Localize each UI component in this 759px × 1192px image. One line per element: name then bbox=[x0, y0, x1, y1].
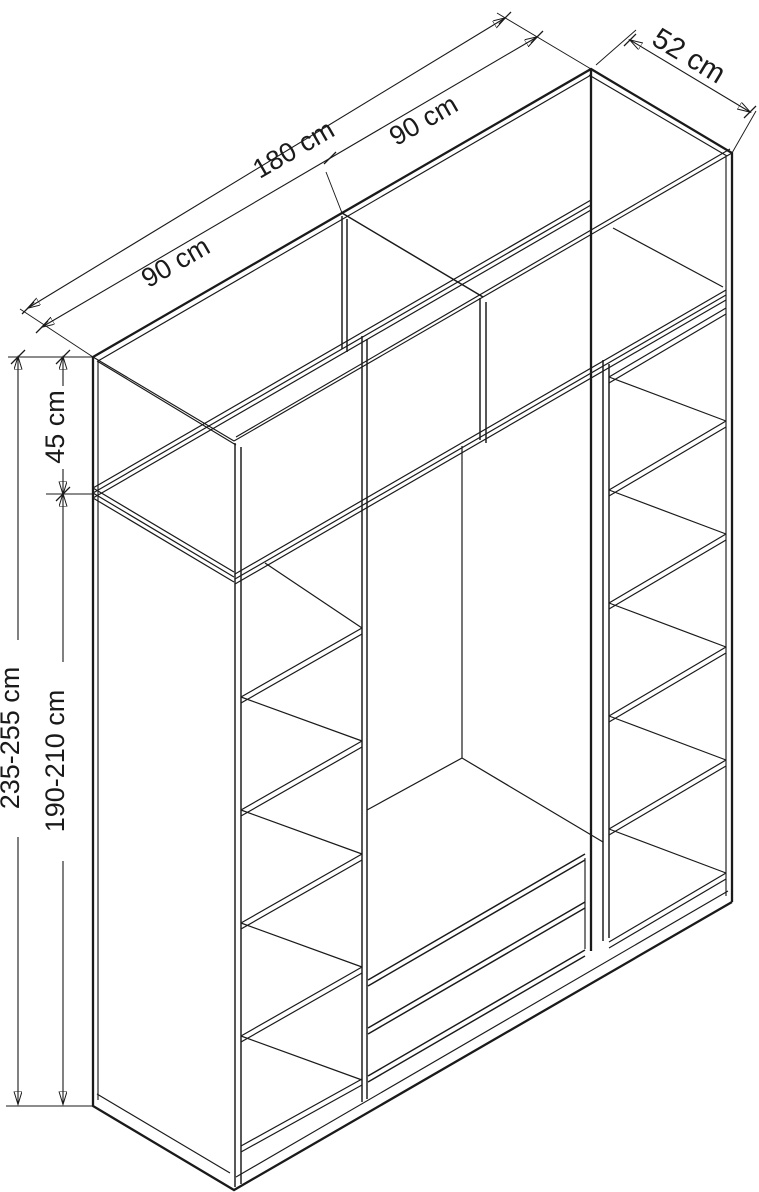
right-shelf-column bbox=[609, 308, 726, 948]
diagram-svg: 90 cm 180 cm 90 cm 52 cm 45 cm 190-210 c… bbox=[0, 0, 759, 1192]
top-cabinet-floor-edge bbox=[613, 228, 723, 287]
dimension-label-upper-height: 45 cm bbox=[40, 390, 70, 464]
middle-compartment-back-corner bbox=[367, 446, 603, 842]
dimension-label-depth: 52 cm bbox=[647, 22, 731, 90]
right-shelf-fronts bbox=[609, 308, 726, 948]
dimension-depth: 52 cm bbox=[596, 22, 756, 153]
left-shelf-surfaces bbox=[241, 563, 362, 1080]
dimension-label-width-right: 90 cm bbox=[384, 89, 463, 152]
left-shelf-column bbox=[241, 563, 362, 1152]
top-cabinet-divider bbox=[342, 213, 486, 443]
dimension-label-width-total: 180 cm bbox=[248, 114, 340, 184]
dimension-label-lower-height: 190-210 cm bbox=[40, 690, 70, 833]
drawer-unit bbox=[368, 854, 585, 1082]
interior-vertical-panels bbox=[235, 336, 609, 1187]
dimension-heights: 45 cm 190-210 cm 235-255 cm bbox=[0, 350, 93, 1106]
right-shelf-surfaces bbox=[609, 377, 726, 873]
width-extension-lines bbox=[20, 13, 591, 357]
dimension-label-width-left: 90 cm bbox=[136, 231, 215, 294]
dimension-top-width: 90 cm 180 cm 90 cm bbox=[20, 12, 591, 357]
dimension-label-total-height: 235-255 cm bbox=[0, 667, 25, 810]
wardrobe-dimension-diagram: 90 cm 180 cm 90 cm 52 cm 45 cm 190-210 c… bbox=[0, 0, 759, 1192]
